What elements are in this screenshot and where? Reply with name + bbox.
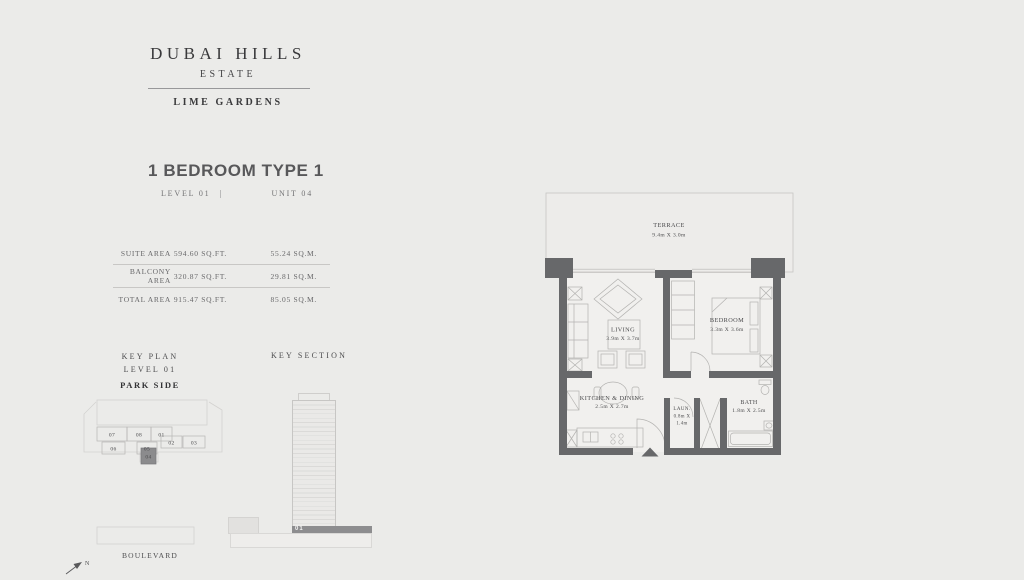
brand-name: DUBAI HILLS: [128, 44, 328, 64]
unit-label: 02: [168, 441, 174, 447]
area-sqft: 594.60 SQ.FT.: [171, 249, 227, 258]
area-label: TOTAL AREA: [113, 295, 171, 304]
room-label-bedroom: BEDROOM: [710, 317, 744, 324]
room-dims-laundry-2: 1.4m: [676, 422, 687, 427]
brand-block: DUBAI HILLS ESTATE LIME GARDENS: [128, 44, 328, 108]
area-sqm: 29.81 SQ.M.: [227, 272, 330, 281]
brand-subname: ESTATE: [128, 69, 328, 80]
level-separator: |: [219, 189, 222, 198]
area-sqft: 320.87 SQ.FT.: [171, 272, 227, 281]
room-dims-bedroom: 3.3m X 3.6m: [710, 327, 744, 333]
area-label: BALCONY AREA: [113, 267, 171, 285]
north-label: N: [85, 561, 90, 567]
room-dims-bath: 1.8m X 2.5m: [732, 408, 766, 414]
area-sqft: 915.47 SQ.FT.: [171, 295, 227, 304]
highlighted-floor-strip: 01: [292, 526, 372, 533]
room-label-terrace: TERRACE: [653, 222, 685, 229]
level-label: LEVEL 01: [161, 189, 210, 198]
unit-label: 08: [136, 433, 142, 439]
unit-subtitle: LEVEL 01 | UNIT 04: [161, 189, 313, 198]
tower-section: [292, 400, 336, 534]
level-label-group: LEVEL 01 |: [161, 189, 223, 198]
unit-number-label: UNIT 04: [271, 189, 313, 198]
table-row: BALCONY AREA 320.87 SQ.FT. 29.81 SQ.M.: [113, 264, 330, 287]
brochure-page: DUBAI HILLS ESTATE LIME GARDENS 1 BEDROO…: [0, 0, 1024, 580]
key-section-heading: KEY SECTION: [248, 351, 370, 360]
room-dims-terrace: 9.4m X 3.0m: [652, 233, 686, 239]
north-arrow-icon: N: [66, 561, 90, 574]
room-dims-kitchen: 2.5m X 2.7m: [595, 404, 629, 410]
boulevard-label: BOULEVARD: [100, 551, 200, 560]
unit-label: 03: [191, 441, 197, 447]
brand-divider: [148, 88, 310, 89]
area-sqm: 55.24 SQ.M.: [227, 249, 330, 258]
table-row: TOTAL AREA 915.47 SQ.FT. 85.05 SQ.M.: [113, 287, 330, 310]
highlighted-unit-label: 04: [145, 455, 151, 461]
table-row: SUITE AREA 594.60 SQ.FT. 55.24 SQ.M.: [113, 242, 330, 264]
floor-plan: TERRACE 9.4m X 3.0m LIVING 3.9m X 3.7m B…: [540, 185, 800, 475]
key-plan-heading: KEY PLAN LEVEL 01: [90, 351, 210, 377]
unit-label: 01: [158, 433, 164, 439]
area-sqm: 85.05 SQ.M.: [227, 295, 330, 304]
unit-label: 05: [144, 447, 150, 453]
unit-label: 06: [110, 447, 116, 453]
room-dims-laundry-1: 0.8m X: [674, 415, 691, 420]
room-dims-living: 3.9m X 3.7m: [606, 336, 640, 342]
podium-block: [228, 517, 259, 534]
unit-header: 1 BEDROOM TYPE 1 LEVEL 01 | UNIT 04: [148, 161, 328, 198]
park-side-label: PARK SIDE: [90, 380, 210, 390]
room-label-kitchen: KITCHEN & DINING: [580, 395, 645, 402]
area-label: SUITE AREA: [113, 249, 171, 258]
building-outline: [84, 400, 222, 544]
room-label-bath: BATH: [740, 400, 758, 406]
ground-slab: [230, 533, 372, 548]
room-label-living: LIVING: [611, 327, 635, 334]
page-title: 1 BEDROOM TYPE 1: [148, 161, 328, 181]
project-name: LIME GARDENS: [128, 97, 328, 108]
area-table: SUITE AREA 594.60 SQ.FT. 55.24 SQ.M. BAL…: [113, 242, 330, 310]
key-plan-title: KEY PLAN: [90, 351, 210, 364]
room-label-laundry: LAUN.: [673, 407, 690, 412]
unit-label: 07: [109, 433, 115, 439]
key-plan-level: LEVEL 01: [90, 364, 210, 377]
